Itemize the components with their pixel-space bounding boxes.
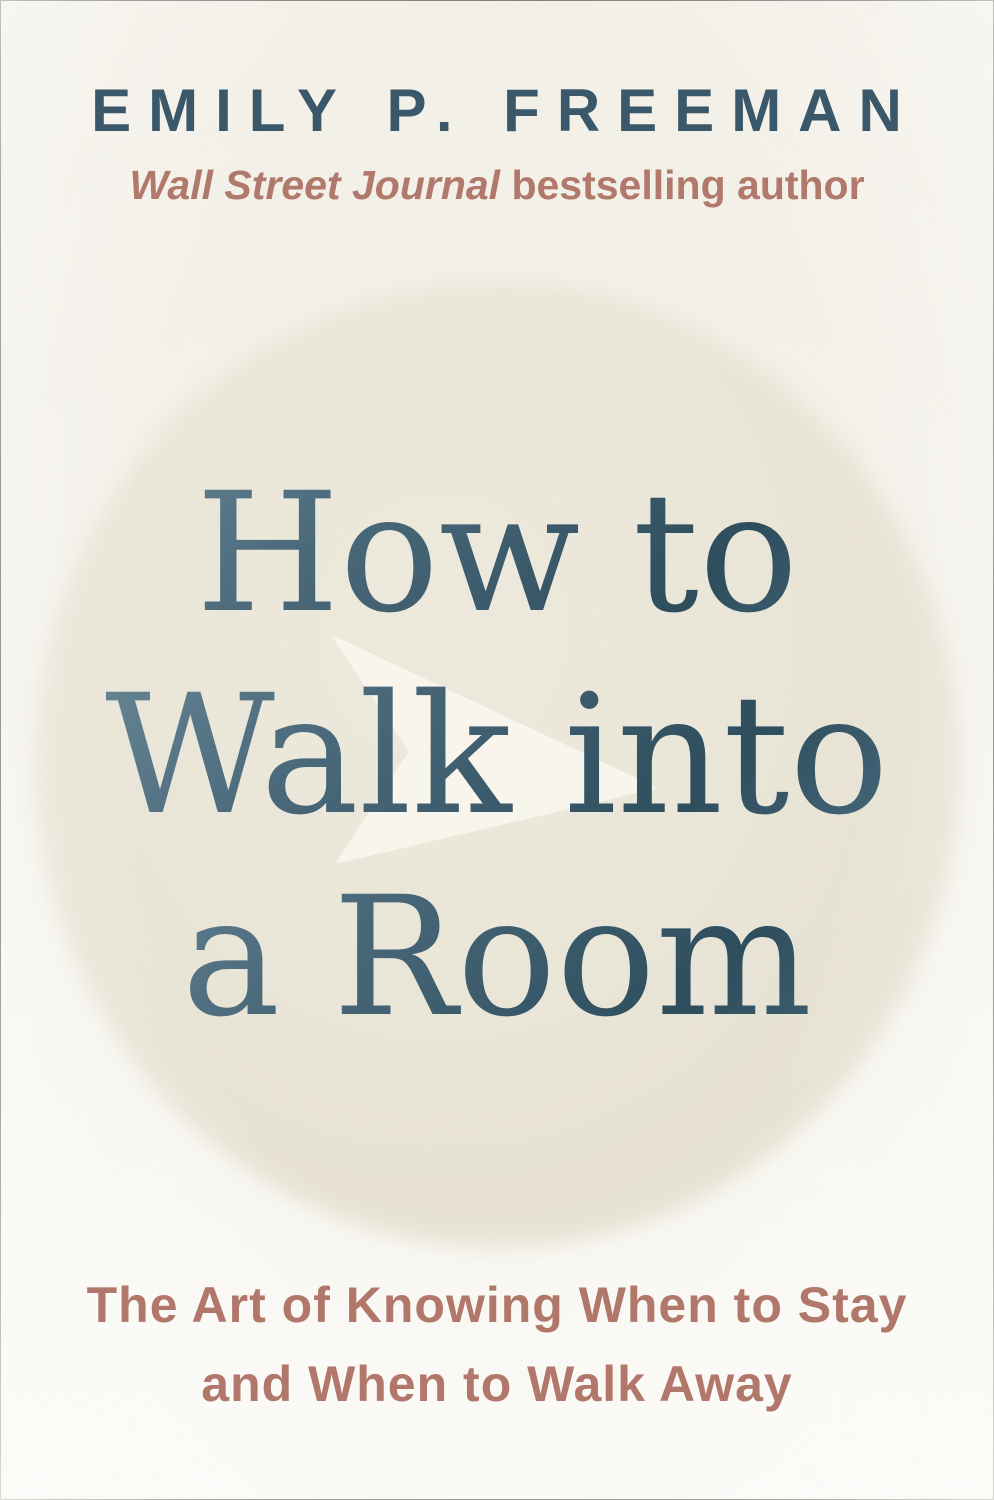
- subtitle-line-1: The Art of Knowing When to Stay: [0, 1266, 994, 1345]
- subtitle-line-2: and When to Walk Away: [0, 1345, 994, 1424]
- title-line-1: How to: [0, 452, 994, 654]
- title-line-2: Walk into: [0, 654, 994, 856]
- book-cover: EMILY P. FREEMAN Wall Street Journal bes…: [0, 0, 994, 1500]
- book-subtitle: The Art of Knowing When to Stay and When…: [0, 1266, 994, 1424]
- book-title: How to Walk into a Room: [0, 452, 994, 1058]
- author-credential: Wall Street Journal bestselling author: [0, 162, 994, 209]
- author-name: EMILY P. FREEMAN: [8, 76, 994, 145]
- credential-suffix: bestselling author: [500, 162, 865, 208]
- title-line-3: a Room: [0, 856, 994, 1058]
- credential-publication: Wall Street Journal: [129, 162, 500, 208]
